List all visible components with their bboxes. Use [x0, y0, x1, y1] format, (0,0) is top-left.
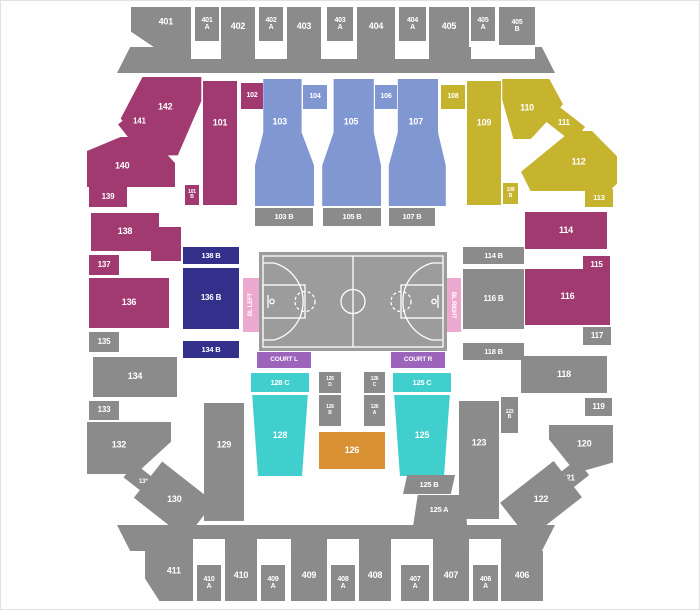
section-label: COURT L	[270, 357, 298, 364]
section-label: 128 C	[270, 379, 289, 387]
concourse-notch	[391, 539, 433, 551]
section-label: 139	[102, 193, 115, 201]
section-label: 126 A	[371, 405, 379, 416]
section-118B[interactable]: 118 B	[463, 343, 524, 360]
section-138B[interactable]: 138 B	[183, 247, 239, 264]
section-138[interactable]: 138	[91, 213, 159, 251]
section-125A[interactable]: 125 A	[411, 495, 467, 525]
concourse-notch	[469, 539, 501, 551]
section-105B[interactable]: 105 B	[323, 208, 381, 226]
section-label: 134	[128, 372, 142, 381]
section-129[interactable]: 129	[204, 403, 244, 521]
section-408A[interactable]: 408 A	[331, 565, 355, 601]
section-136[interactable]: 136	[89, 278, 169, 328]
section-label: 137	[98, 261, 111, 269]
section-label: 130	[167, 495, 181, 504]
section-label: 407 A	[409, 576, 420, 591]
section-label: 404 A	[407, 17, 418, 32]
section-126[interactable]: 126	[319, 432, 385, 469]
section-404A[interactable]: 404 A	[399, 7, 426, 41]
section-101[interactable]: 101	[203, 81, 237, 205]
section-label: 128	[273, 431, 287, 440]
section-label: 125 B	[419, 481, 438, 489]
section-label: 107	[409, 117, 423, 126]
section-label: 123	[472, 439, 486, 448]
section-label: COURT R	[404, 357, 432, 364]
concourse-notch	[471, 47, 535, 59]
section-407[interactable]: 407	[433, 551, 469, 601]
concourse-notch	[395, 47, 429, 59]
section-label: 408 A	[337, 576, 348, 591]
section-label: 407	[444, 571, 458, 580]
section-label: 141	[133, 118, 146, 126]
section-label: 117	[591, 332, 603, 340]
section-label: 126 D	[326, 377, 334, 388]
section-label: 401 A	[201, 17, 212, 32]
section-label: 136	[122, 298, 136, 307]
section-109[interactable]: 109	[467, 81, 501, 205]
section-label: 122	[534, 495, 548, 504]
section-label: BL RIGHT	[450, 292, 456, 319]
section-label: 409 A	[267, 576, 278, 591]
section-101B[interactable]: 101 B	[185, 185, 199, 205]
court-markings	[259, 252, 447, 351]
section-403A[interactable]: 403 A	[327, 7, 353, 41]
section-label: 410	[234, 571, 248, 580]
section-label: 405 A	[477, 17, 488, 32]
section-label: 136 B	[201, 294, 221, 302]
section-403[interactable]: 403	[287, 7, 321, 47]
section-label: 105 B	[342, 213, 361, 221]
section-label: 402	[231, 22, 245, 31]
section-125C[interactable]: 125 C	[393, 373, 451, 392]
section-407A[interactable]: 407 A	[401, 565, 429, 601]
section-label: 134 B	[201, 346, 220, 354]
court-r-tab[interactable]: COURT R	[391, 352, 445, 368]
section-label: 129	[217, 441, 231, 450]
section-126C[interactable]: 126 C	[364, 372, 385, 393]
section-116B[interactable]: 116 B	[463, 269, 524, 329]
section-label: 406	[515, 571, 529, 580]
section-label: 105	[344, 117, 358, 126]
section-label: 125	[415, 431, 429, 440]
section-405B[interactable]: 405 B	[499, 7, 535, 45]
section-105[interactable]: 105	[321, 79, 381, 206]
section-label: 132	[112, 441, 126, 450]
section-label: 408	[368, 571, 382, 580]
section-label: 135	[98, 338, 111, 346]
section-label: 111	[558, 119, 570, 127]
section-label: 126	[345, 446, 359, 455]
section-102[interactable]: 102	[241, 83, 263, 109]
concourse-notch	[327, 539, 359, 551]
section-label: 120	[577, 439, 591, 448]
section-117[interactable]: 117	[583, 327, 611, 345]
section-label: 404	[369, 22, 383, 31]
section-label: 114 B	[484, 252, 503, 260]
section-107B[interactable]: 107 B	[389, 208, 435, 226]
section-409A[interactable]: 409 A	[261, 565, 285, 601]
concourse-notch	[257, 539, 291, 551]
section-137[interactable]: 137	[89, 255, 119, 275]
section-401A[interactable]: 401 A	[195, 7, 219, 41]
section-label: 123 B	[506, 410, 514, 421]
section-label: 133	[98, 406, 111, 414]
section-label: 102	[246, 92, 257, 99]
section-135[interactable]: 135	[89, 332, 119, 352]
section-406A[interactable]: 406 A	[473, 565, 498, 601]
basketball-court	[259, 252, 447, 351]
concourse-notch	[321, 47, 357, 59]
section-label: 411	[167, 566, 181, 575]
section-label: 126 C	[371, 377, 379, 388]
section-402[interactable]: 402	[221, 7, 255, 47]
section-139[interactable]: 139	[89, 187, 127, 207]
section-405A[interactable]: 405 A	[471, 7, 495, 41]
section-136B[interactable]: 136 B	[183, 268, 239, 329]
section-label: 118 B	[484, 348, 503, 356]
section-134B[interactable]: 134 B	[183, 341, 239, 358]
arena-seating-map: 401401 A402402 A403403 A404404 A405405 A…	[0, 0, 700, 610]
concourse-notch	[255, 47, 287, 59]
section-404[interactable]: 404	[357, 7, 395, 47]
section-409[interactable]: 409	[291, 551, 327, 601]
section-label: 109 B	[507, 188, 515, 199]
section-label: 108	[447, 93, 458, 100]
section-410A[interactable]: 410 A	[197, 565, 221, 601]
section-label: 125 C	[412, 379, 431, 387]
section-label: 401	[159, 17, 173, 26]
section-410[interactable]: 410	[225, 551, 257, 601]
section-label: 118	[557, 370, 571, 379]
section-114B[interactable]: 114 B	[463, 247, 524, 264]
section-402A[interactable]: 402 A	[259, 7, 283, 41]
section-label: 403	[297, 22, 311, 31]
section-118[interactable]: 118	[521, 356, 607, 393]
section-label: 110	[520, 103, 534, 112]
section-label: 140	[115, 161, 129, 170]
section-label: 406 A	[480, 576, 491, 591]
section-128[interactable]: 128	[251, 395, 309, 476]
section-126B[interactable]: 126 B	[319, 395, 341, 426]
section-label: BL LEFT	[248, 293, 254, 316]
section-116[interactable]: 116	[525, 269, 610, 325]
section-125[interactable]: 125	[393, 395, 451, 476]
section-label: 409	[302, 571, 316, 580]
section-label: 103 B	[274, 213, 293, 221]
section-label: 114	[559, 226, 573, 235]
section-label: 125 A	[430, 506, 449, 514]
section-label: 126 B	[326, 405, 334, 416]
concourse-notch	[191, 47, 221, 59]
section-114[interactable]: 114	[525, 212, 607, 249]
section-label: 107 B	[402, 213, 421, 221]
section-label: 119	[592, 403, 604, 411]
section-134[interactable]: 134	[93, 357, 177, 397]
section-408[interactable]: 408	[359, 551, 391, 601]
section-123B[interactable]: 123 B	[501, 397, 518, 433]
section-108[interactable]: 108	[441, 85, 465, 109]
section-label: 103	[273, 117, 287, 126]
section-label: 116	[561, 292, 575, 301]
section-109B[interactable]: 109 B	[503, 183, 518, 204]
section-label: 104	[309, 93, 320, 100]
section-label: 101 B	[188, 190, 196, 201]
section-label: 142	[158, 103, 172, 112]
section-label: 402 A	[265, 17, 276, 32]
section-label: 112	[572, 157, 586, 166]
section-label: 410 A	[203, 576, 214, 591]
section-138-part	[151, 227, 181, 261]
section-103B[interactable]: 103 B	[255, 208, 313, 226]
concourse-notch	[193, 539, 225, 551]
section-406[interactable]: 406	[501, 551, 543, 601]
bl-right-tab[interactable]: BL RIGHT	[445, 278, 461, 332]
bl-left-tab[interactable]: BL LEFT	[243, 278, 259, 332]
section-label: 405	[442, 22, 456, 31]
section-411[interactable]: 411	[145, 551, 193, 601]
section-label: 138 B	[201, 252, 220, 260]
section-label: 405 B	[511, 19, 522, 34]
section-label: 106	[380, 93, 391, 100]
section-125B[interactable]: 125 B	[403, 475, 455, 494]
section-133[interactable]: 133	[89, 401, 119, 420]
section-label: 116 B	[484, 295, 504, 303]
section-128C[interactable]: 128 C	[251, 373, 309, 392]
section-label: 109	[477, 118, 491, 127]
section-106[interactable]: 106	[375, 85, 397, 109]
section-126A[interactable]: 126 A	[364, 395, 385, 426]
section-label: 113	[593, 194, 605, 202]
section-113[interactable]: 113	[585, 189, 613, 207]
section-label: 403 A	[334, 17, 345, 32]
section-112[interactable]: 112	[521, 131, 617, 191]
section-126D[interactable]: 126 D	[319, 372, 341, 393]
section-label: 138	[118, 227, 132, 236]
court-l-tab[interactable]: COURT L	[257, 352, 311, 368]
section-405[interactable]: 405	[429, 7, 469, 47]
section-119[interactable]: 119	[585, 398, 612, 416]
section-label: 101	[213, 118, 227, 127]
section-104[interactable]: 104	[303, 85, 327, 109]
section-401[interactable]: 401	[131, 7, 191, 47]
